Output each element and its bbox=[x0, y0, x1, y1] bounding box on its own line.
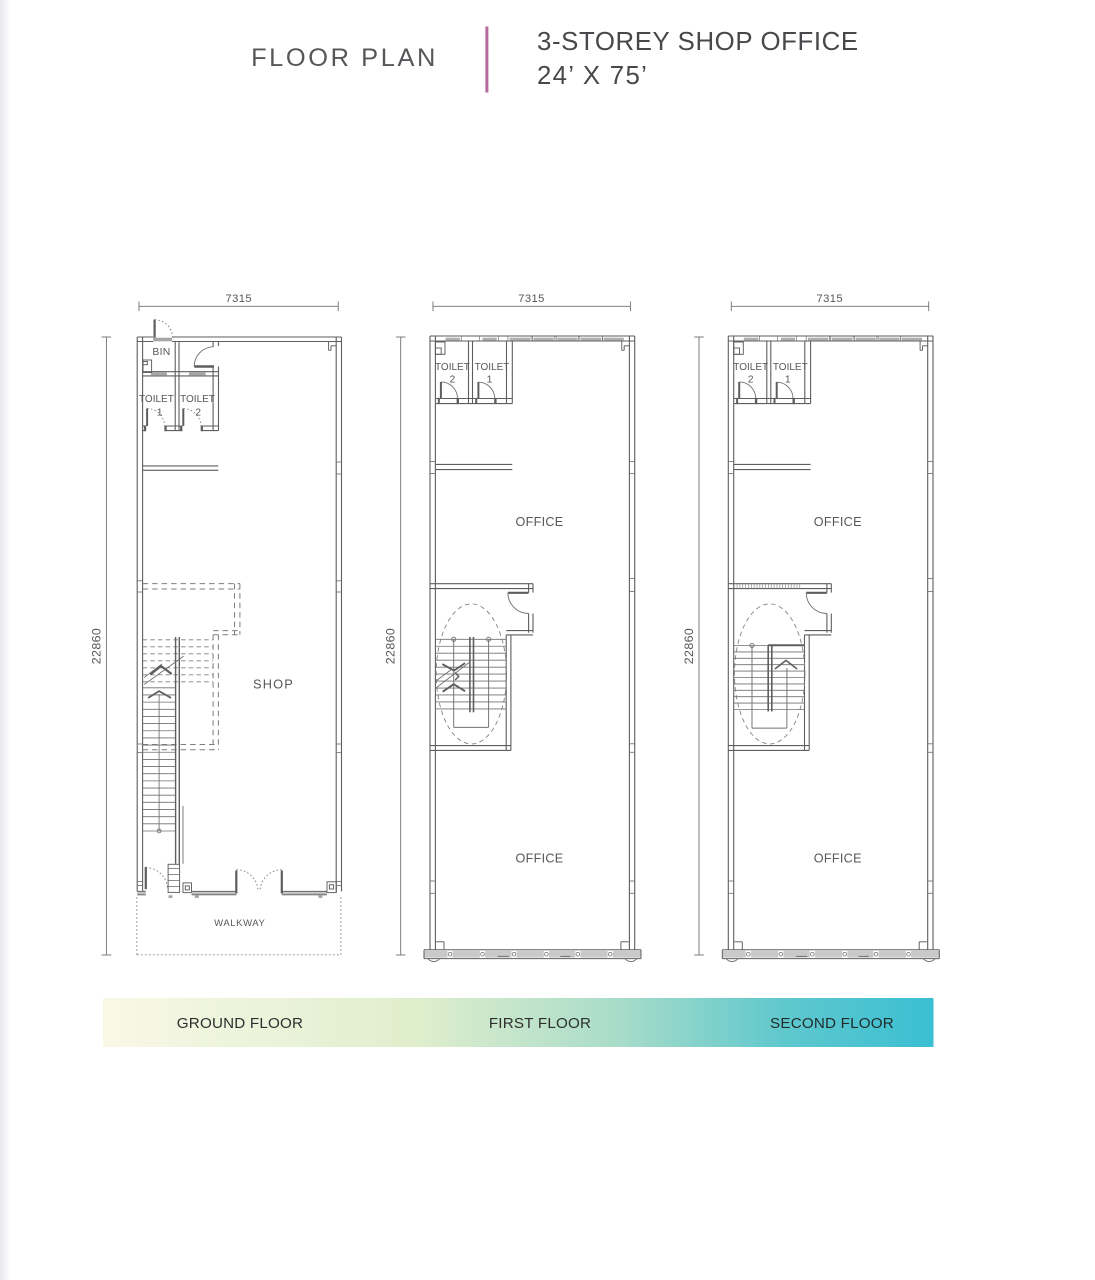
svg-text:OFFICE: OFFICE bbox=[516, 515, 564, 529]
svg-text:FLOOR PLAN: FLOOR PLAN bbox=[251, 44, 438, 72]
svg-text:7315: 7315 bbox=[817, 293, 844, 305]
svg-text:OFFICE: OFFICE bbox=[814, 515, 862, 529]
svg-text:1: 1 bbox=[785, 374, 791, 385]
svg-text:7315: 7315 bbox=[518, 293, 545, 305]
svg-text:TOILET: TOILET bbox=[139, 394, 174, 405]
svg-text:7315: 7315 bbox=[226, 293, 253, 305]
svg-text:1: 1 bbox=[157, 407, 163, 418]
svg-text:22860: 22860 bbox=[682, 628, 696, 664]
svg-text:TOILET: TOILET bbox=[435, 362, 470, 373]
svg-text:1: 1 bbox=[487, 374, 493, 385]
svg-text:2: 2 bbox=[450, 374, 456, 385]
svg-text:TOILET: TOILET bbox=[475, 362, 510, 373]
svg-text:TOILET: TOILET bbox=[180, 394, 215, 405]
svg-text:22860: 22860 bbox=[384, 628, 398, 664]
svg-text:GROUND FLOOR: GROUND FLOOR bbox=[177, 1015, 303, 1032]
svg-text:WALKWAY: WALKWAY bbox=[214, 918, 265, 929]
svg-text:OFFICE: OFFICE bbox=[516, 851, 564, 865]
svg-text:22860: 22860 bbox=[90, 628, 104, 664]
svg-text:SECOND FLOOR: SECOND FLOOR bbox=[770, 1015, 894, 1032]
svg-text:3-STOREY SHOP OFFICE: 3-STOREY SHOP OFFICE bbox=[537, 28, 859, 56]
svg-text:FIRST FLOOR: FIRST FLOOR bbox=[489, 1015, 591, 1032]
svg-text:24’ X 75’: 24’ X 75’ bbox=[537, 62, 648, 90]
svg-text:BIN: BIN bbox=[152, 347, 170, 358]
svg-text:TOILET: TOILET bbox=[773, 362, 808, 373]
svg-text:2: 2 bbox=[748, 374, 754, 385]
svg-text:2: 2 bbox=[195, 407, 201, 418]
svg-text:SHOP: SHOP bbox=[253, 676, 294, 691]
svg-text:TOILET: TOILET bbox=[733, 362, 768, 373]
svg-text:OFFICE: OFFICE bbox=[814, 851, 862, 865]
